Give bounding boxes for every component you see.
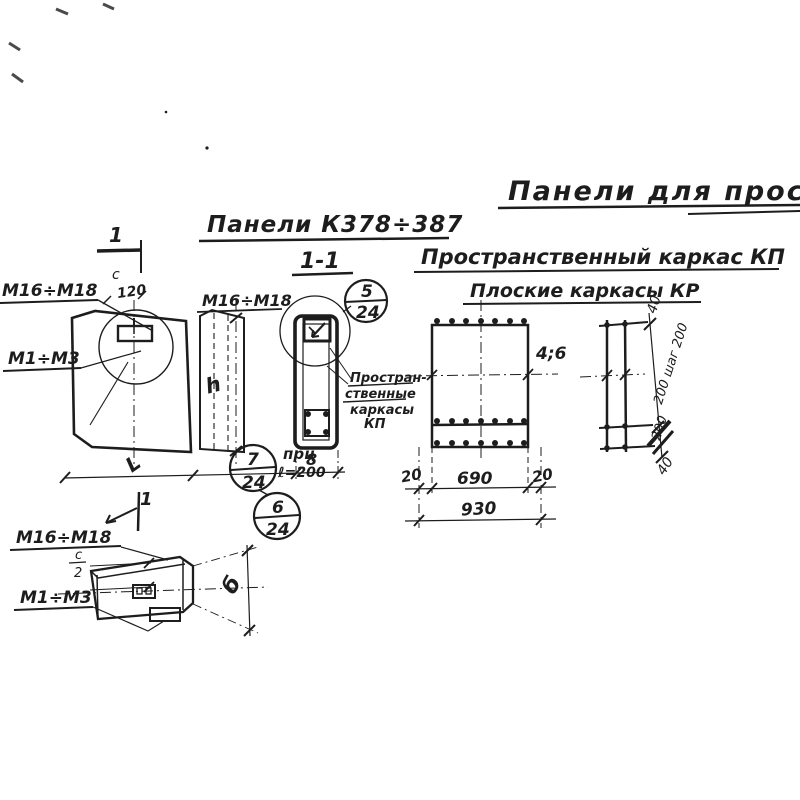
cut-mark-bottom: 1 [140, 489, 153, 510]
svg-text:5: 5 [361, 282, 373, 302]
kp-centerline-h [405, 374, 558, 376]
dim-h: h [203, 372, 223, 399]
svg-text:каркасы: каркасы [350, 403, 414, 418]
kr-title: Плоские каркасы КР [470, 280, 699, 302]
kp-dim-20-left: 20 [400, 465, 424, 486]
kr-centerline [580, 374, 645, 377]
kr-bar-right [625, 320, 626, 452]
kp-top-bars [434, 318, 527, 324]
kp-dim-930: 930 [460, 499, 497, 521]
label-m16-m18-front: М16÷М18 [2, 281, 98, 301]
note-l200: ℓ=200 [277, 465, 326, 481]
label-m16-m18-section: М16÷М18 [202, 291, 292, 310]
callout-6-24: 6 24 [254, 493, 300, 540]
svg-text:24: 24 [266, 520, 290, 540]
section-1-1-view: М16÷М18 5 24 Простран- ственн [197, 280, 427, 540]
kp-pos-label: 4;6 [535, 344, 567, 364]
kr-dim-mid: 200 шаг 200 [651, 321, 691, 406]
svg-text:КП: КП [364, 417, 386, 432]
section-title: 1-1 [300, 249, 340, 274]
dim-L: L [121, 450, 145, 477]
svg-text:7: 7 [247, 450, 259, 470]
callout-5-24: 5 24 [345, 280, 387, 323]
svg-text:24: 24 [242, 473, 266, 493]
note-prc: прц [283, 445, 315, 463]
label-m1-m3-front: М1÷М3 [8, 349, 80, 369]
section-detail-circle [280, 296, 350, 366]
drawing-sheet: Панели для прост Панели К378÷387 1-1 Про… [0, 0, 800, 800]
panels-range-title: Панели К378÷387 [207, 212, 463, 238]
kr-dim-40-bottom: 40 [654, 454, 677, 478]
kp-outline [432, 325, 528, 447]
plan-dim-c-den: 2 [74, 566, 82, 581]
dim-c: с [112, 267, 120, 283]
plan-b-dim-line [247, 545, 250, 636]
svg-text:6: 6 [272, 498, 284, 518]
drawing-canvas: Панели для прост Панели К378÷387 1-1 Про… [0, 0, 800, 800]
kp-title: Пространственный каркас КП [421, 245, 785, 269]
plan-view: М16÷М18 с 2 М1÷М3 б [10, 528, 268, 636]
svg-text:24: 24 [356, 303, 380, 323]
main-title: Панели для прост [508, 176, 800, 207]
spatial-frames-annotation: Простран- ственные каркасы КП [343, 371, 427, 432]
cut-mark-top: 1 [109, 223, 123, 247]
titles: Панели для прост Панели К378÷387 1-1 Про… [199, 176, 800, 304]
scan-artifacts [9, 4, 209, 150]
plan-dim-b: б [217, 572, 246, 599]
dim-120: 120 [116, 282, 147, 302]
kp-dim-20-right: 20 [531, 465, 555, 486]
callout-7-24: 7 24 [230, 445, 276, 493]
plan-dim-c-num: с [75, 548, 82, 563]
kr-frame: 40 200 шаг 200 200 40 [580, 294, 692, 479]
kp-frame: 4;6 20 690 20 930 [400, 300, 567, 528]
kp-dim-690: 690 [457, 469, 493, 489]
front-panel-outline [72, 311, 191, 452]
label-m16-m18-plan: М16÷М18 [16, 528, 112, 548]
panels-range-underline [199, 238, 449, 241]
label-m1-m3-plan: М1÷М3 [20, 588, 92, 608]
